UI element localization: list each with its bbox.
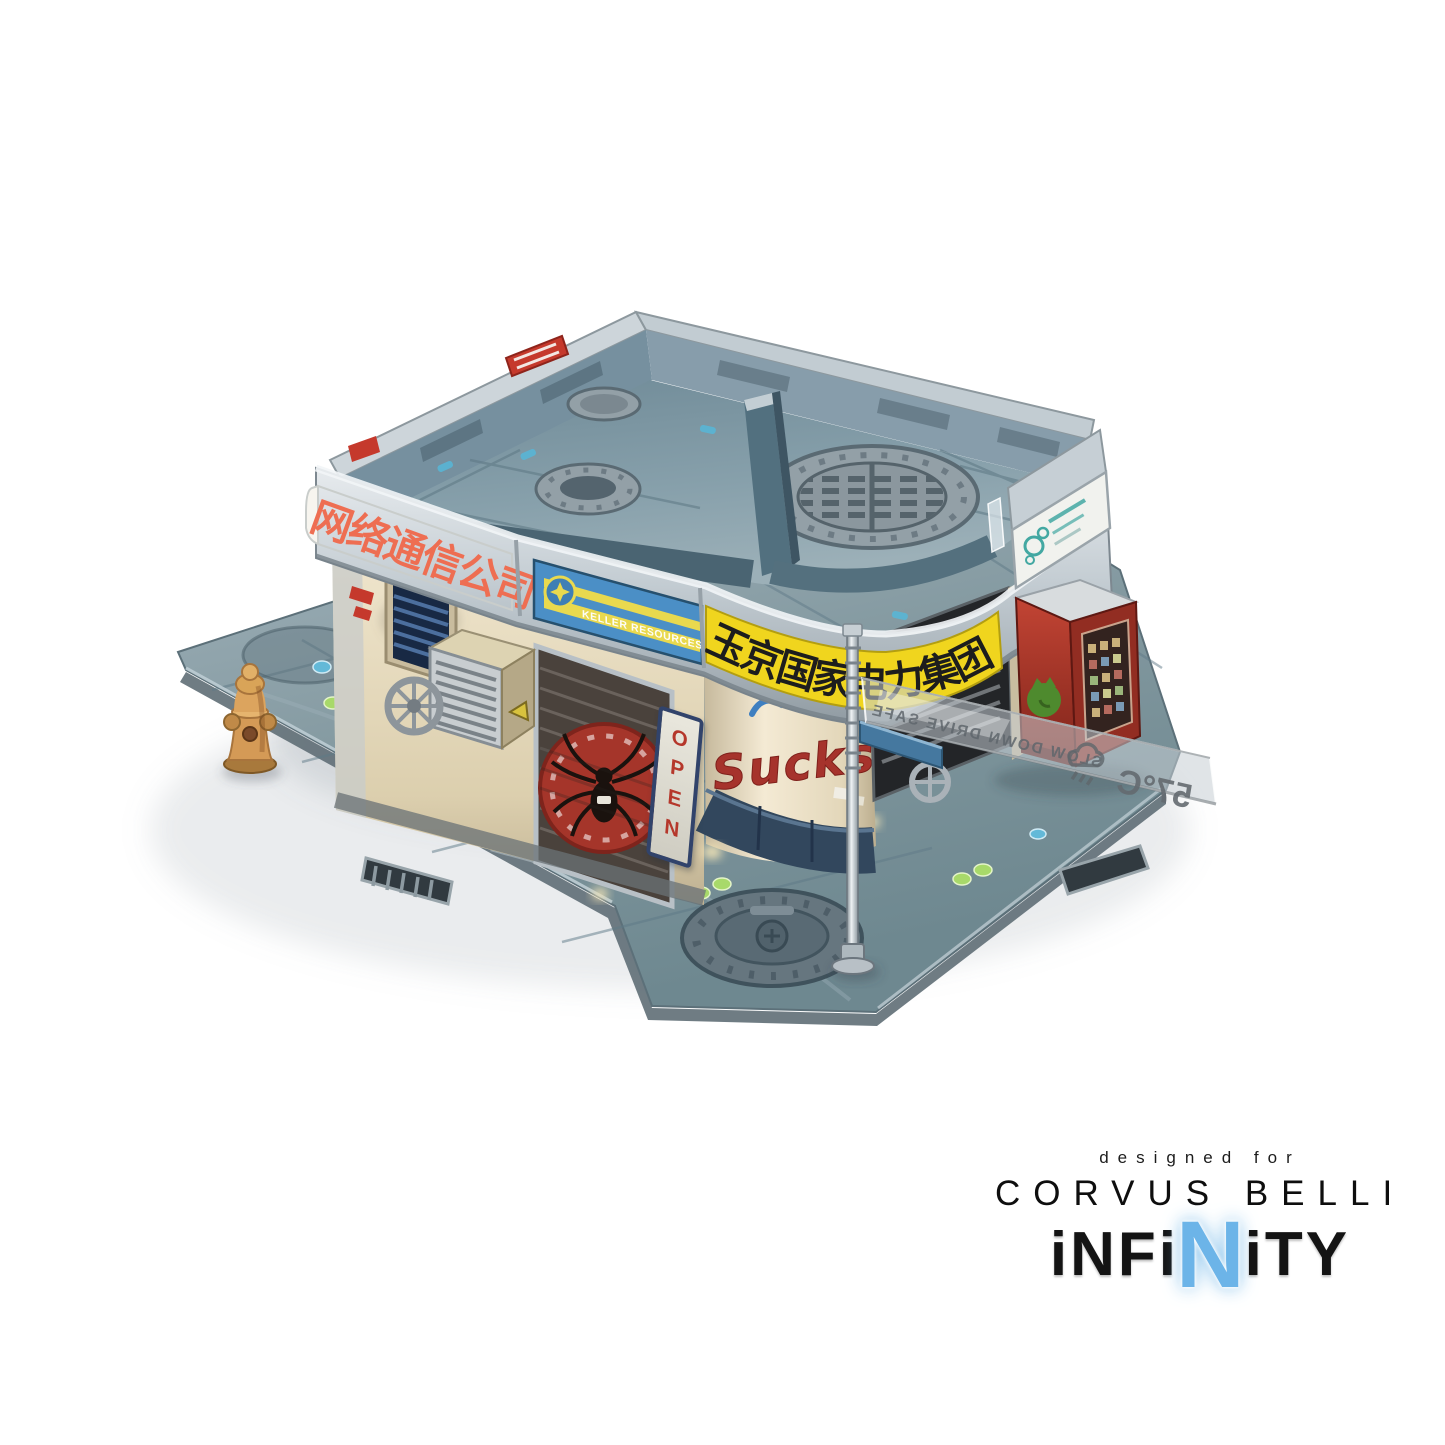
ac-unit	[430, 630, 534, 748]
roof-vent-small	[536, 464, 640, 514]
valve-wheel-right	[912, 764, 948, 800]
infinity-logo-prefix: iNFi	[1050, 1220, 1179, 1289]
designed-for-label: designed for	[995, 1148, 1405, 1168]
brand-logo: designed for CORVUS BELLI iNFiNiTY	[995, 1148, 1405, 1294]
roof-vent-maze	[766, 446, 978, 548]
infinity-logo-suffix: iTY	[1245, 1220, 1350, 1289]
infinity-logo: iNFiNiTY	[995, 1216, 1405, 1294]
product-photo-terrain-building: Sucks 网络通信公司	[0, 0, 1445, 1445]
infinity-logo-big-n: N	[1176, 1216, 1248, 1294]
valve-wheel	[388, 680, 440, 732]
